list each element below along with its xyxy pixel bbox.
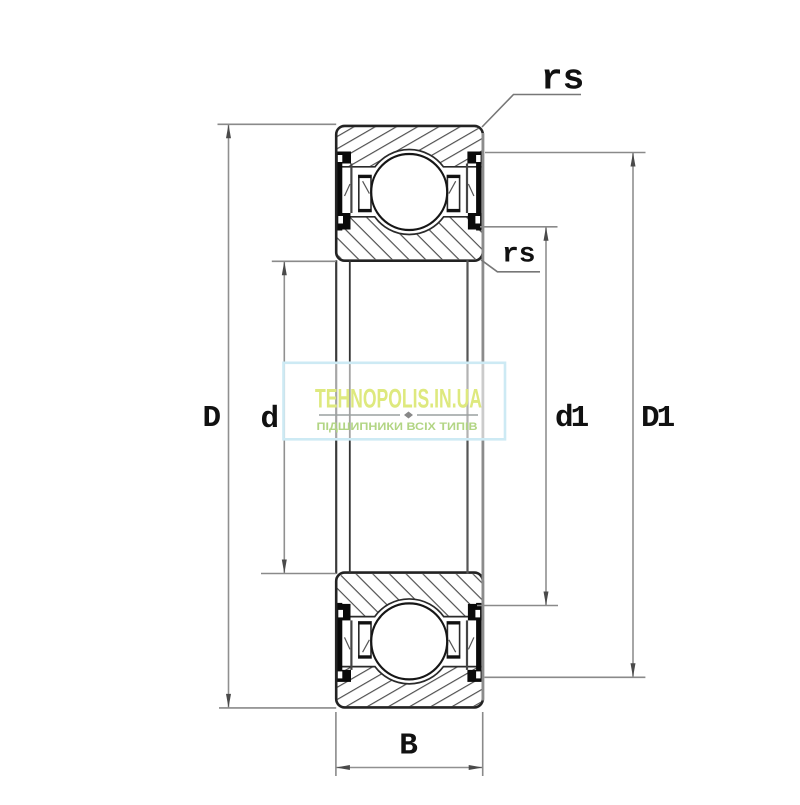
svg-text:ПІДШИПНИКИ ВСІХ ТИПІВ: ПІДШИПНИКИ ВСІХ ТИПІВ [317,421,478,433]
svg-text:B: B [399,729,418,764]
svg-text:d1: d1 [555,401,589,436]
svg-text:TEHNOPOLIS.IN.UA: TEHNOPOLIS.IN.UA [315,384,482,414]
svg-text:D: D [203,401,222,436]
svg-text:d: d [261,402,280,437]
svg-text:D1: D1 [641,401,675,436]
svg-text:rs: rs [502,240,536,271]
svg-text:rs: rs [541,59,584,100]
